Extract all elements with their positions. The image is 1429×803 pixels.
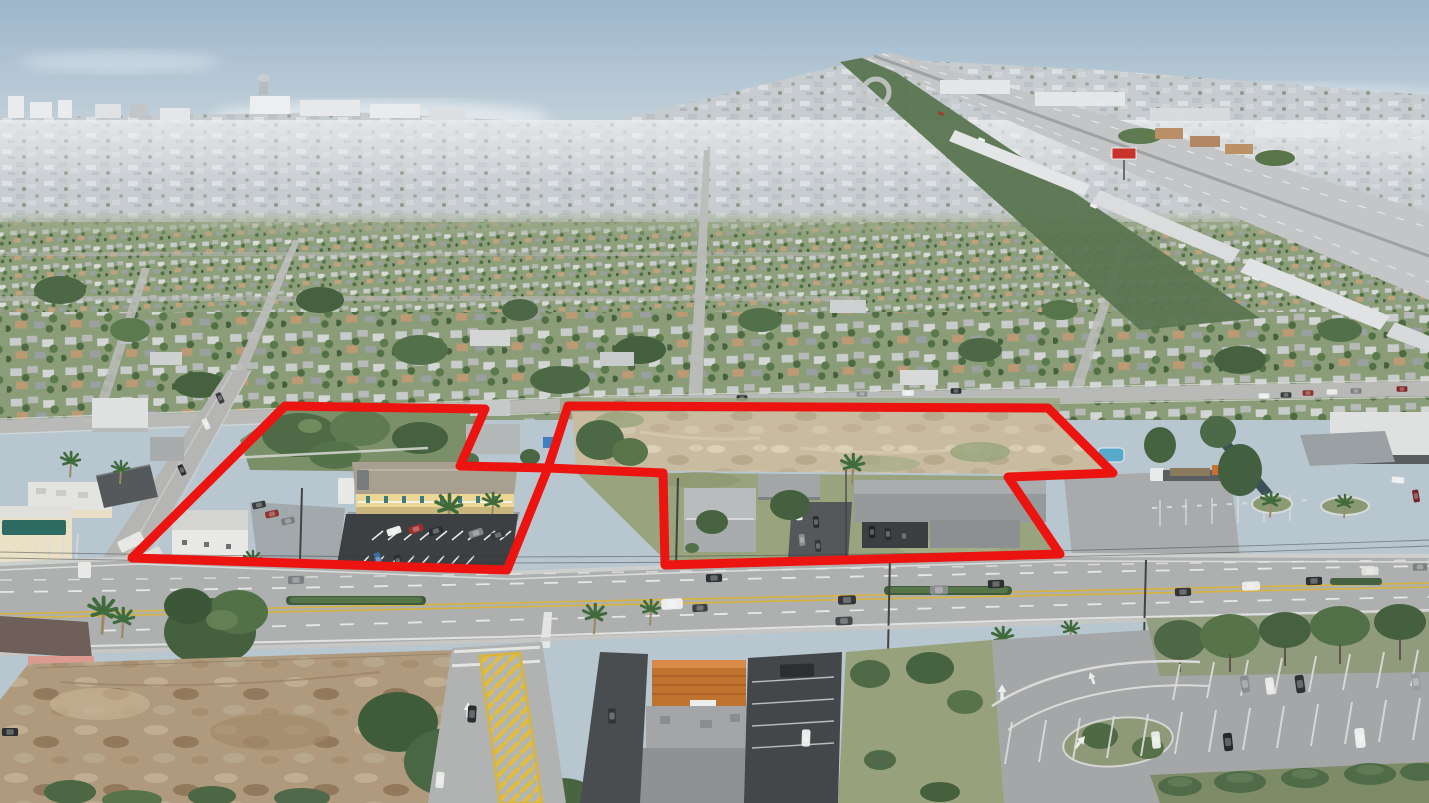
aerial-photo-canvas bbox=[0, 0, 1429, 803]
west-parking bbox=[580, 652, 648, 803]
east-of-parcel-b bbox=[1064, 412, 1429, 556]
teal-awning bbox=[2, 520, 66, 535]
parked-rv bbox=[338, 478, 354, 504]
flatbed-truck-2 bbox=[780, 663, 814, 677]
parked-van bbox=[78, 562, 91, 578]
right-parking-lot bbox=[992, 604, 1429, 803]
portico-canopy bbox=[1300, 431, 1395, 466]
vacant-sand-lot bbox=[572, 410, 1106, 474]
gable-house bbox=[684, 488, 756, 553]
big-tree bbox=[164, 588, 268, 666]
aerial-photo bbox=[0, 0, 1429, 803]
landscape-islands bbox=[1252, 492, 1369, 518]
